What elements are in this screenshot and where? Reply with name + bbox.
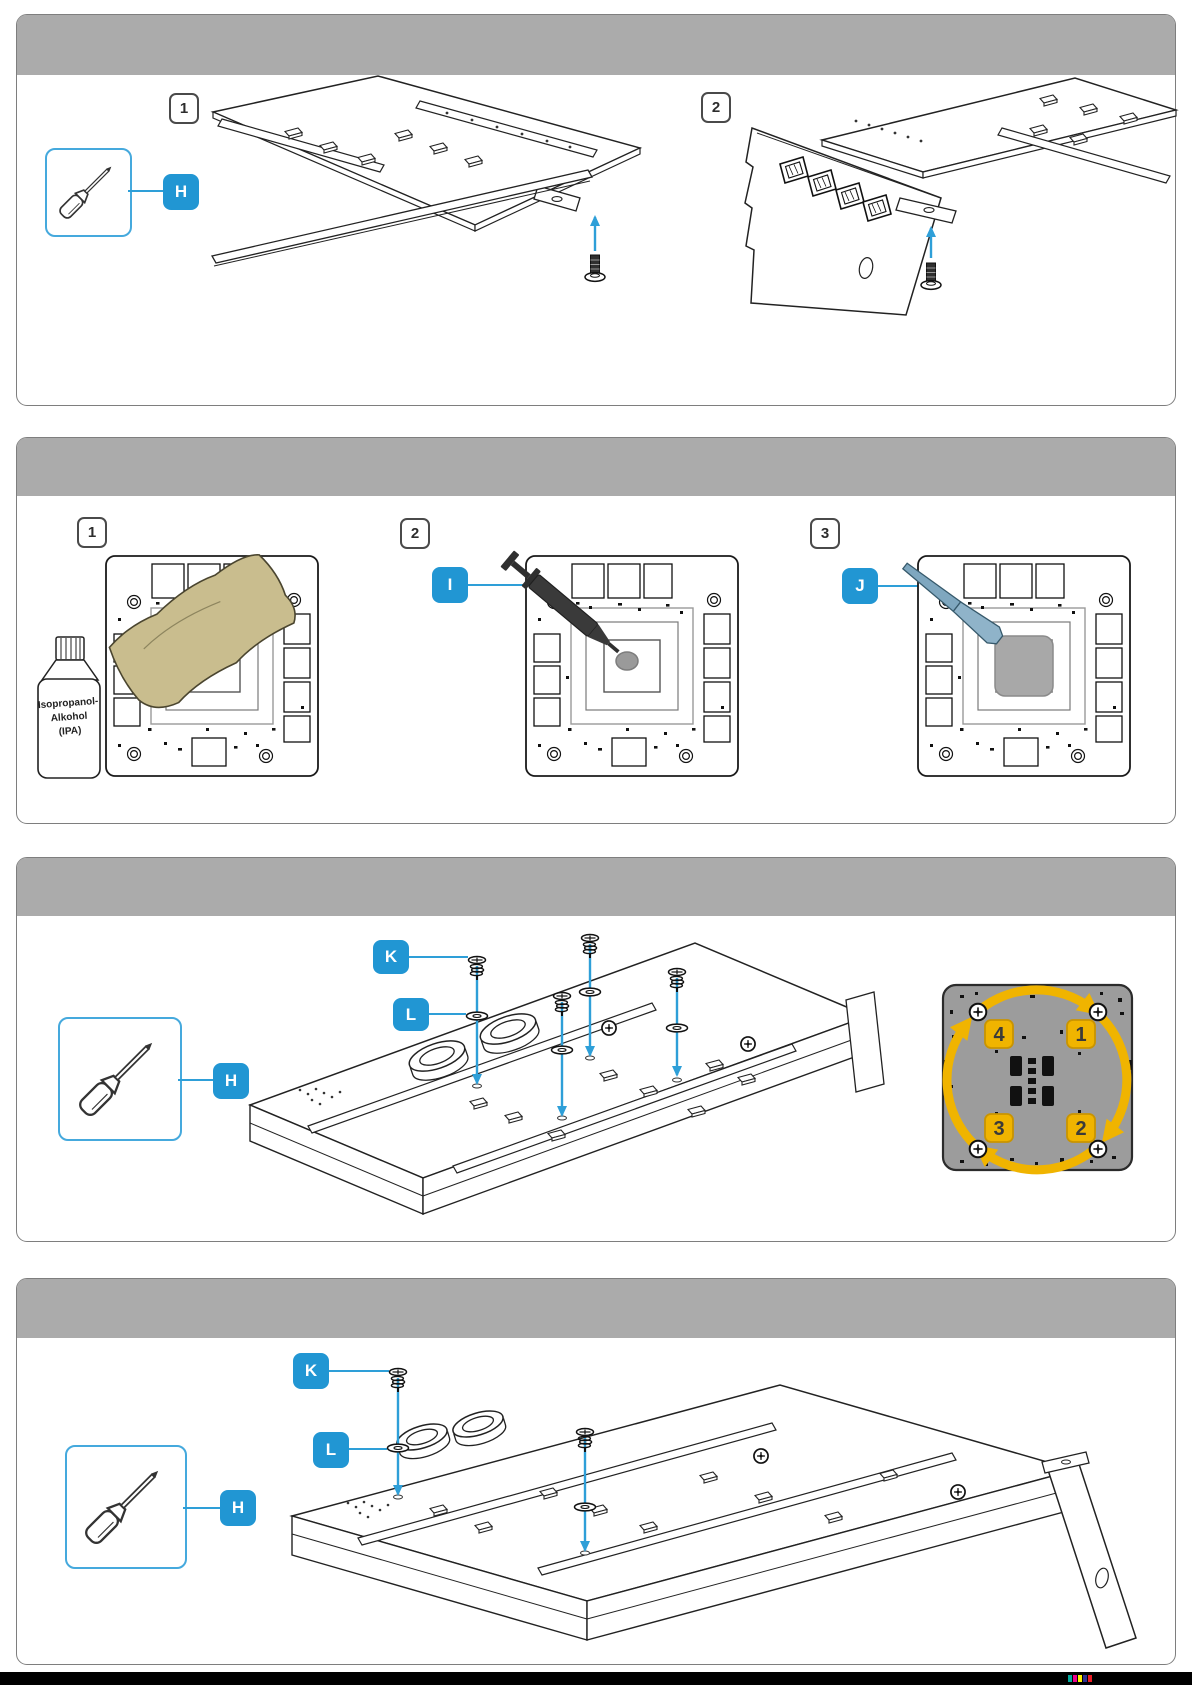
print-color-mark (1083, 1675, 1087, 1682)
tool-badge-k-section3: K (373, 940, 409, 974)
callout-line-h4 (183, 1507, 220, 1509)
callout-line-l3 (428, 1013, 466, 1015)
badge-letter: K (385, 947, 397, 967)
callout-line-h1 (128, 190, 163, 192)
section-panel-3 (16, 857, 1176, 1242)
step-number-text: 1 (88, 524, 96, 541)
badge-letter: I (448, 575, 453, 595)
callout-line-h3 (178, 1079, 213, 1081)
print-color-mark (1073, 1675, 1077, 1682)
callout-line-j (878, 585, 918, 587)
badge-letter: H (225, 1071, 237, 1091)
step-number-text: 2 (411, 525, 419, 542)
step-number-text: 1 (180, 100, 188, 117)
section-4-header-bar (17, 1279, 1175, 1338)
section-panel-1 (16, 14, 1176, 406)
callout-line-i (468, 584, 550, 586)
print-color-mark (1078, 1675, 1082, 1682)
step-number-text: 2 (712, 99, 720, 116)
badge-letter: L (326, 1440, 336, 1460)
tool-badge-l-section4: L (313, 1432, 349, 1468)
tool-badge-h-section1: H (163, 174, 199, 210)
print-color-mark (1068, 1675, 1072, 1682)
tool-box-screwdriver-3 (58, 1017, 182, 1141)
tool-box-screwdriver-4 (65, 1445, 187, 1569)
badge-letter: H (175, 182, 187, 202)
step-number-text: 3 (821, 525, 829, 542)
tool-badge-h-section4: H (220, 1490, 256, 1526)
section-1-header-bar (17, 15, 1175, 75)
callout-line-k4 (329, 1370, 389, 1372)
tool-badge-l-section3: L (393, 998, 429, 1031)
tool-badge-h-section3: H (213, 1063, 249, 1099)
badge-letter: H (232, 1498, 244, 1518)
section-panel-4 (16, 1278, 1176, 1665)
badge-letter: K (305, 1361, 317, 1381)
tool-badge-i: I (432, 567, 468, 603)
badge-letter: J (855, 576, 864, 596)
callout-line-l4 (348, 1448, 387, 1450)
callout-line-k3 (409, 956, 468, 958)
section2-step-1-number: 1 (77, 517, 107, 548)
print-color-mark (1088, 1675, 1092, 1682)
tool-badge-k-section4: K (293, 1353, 329, 1389)
page-footer-bar (0, 1672, 1192, 1685)
section-panel-2 (16, 437, 1176, 824)
tool-box-screwdriver-1 (45, 148, 132, 237)
manual-page: Isopropanol- Alkohol (IPA) (0, 0, 1192, 1685)
badge-letter: L (406, 1005, 416, 1025)
section1-step-1-number: 1 (169, 93, 199, 124)
section-3-header-bar (17, 858, 1175, 916)
tool-badge-j: J (842, 568, 878, 604)
section2-step-3-number: 3 (810, 518, 840, 549)
section2-step-2-number: 2 (400, 518, 430, 549)
section1-step-2-number: 2 (701, 92, 731, 123)
section-2-header-bar (17, 438, 1175, 496)
